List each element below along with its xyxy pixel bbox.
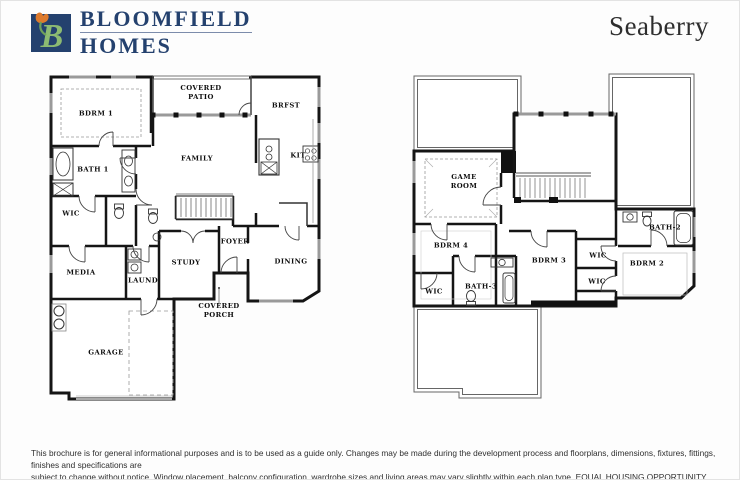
room-label-garage: GARAGE <box>88 349 123 358</box>
room-label-family: FAMILY <box>181 155 213 164</box>
room-label-study: STUDY <box>172 259 201 268</box>
bloomfield-logo-icon: B <box>29 8 73 59</box>
room-label-foyer: FOYER <box>221 238 249 247</box>
room-label-wic-mid: WIC <box>588 278 605 287</box>
room-label-brfst: BRFST <box>272 102 300 111</box>
room-label-bdrm-3: BDRM 3 <box>532 257 566 266</box>
room-label-laund: LAUND <box>128 277 158 286</box>
room-label-game-room: GAME ROOM <box>451 173 478 191</box>
brand-header: B BLOOMFIELD HOMES <box>29 8 252 59</box>
room-label-bdrm-2: BDRM 2 <box>630 260 664 269</box>
second-floor-plan-drawing <box>401 61 701 406</box>
disclaimer-line1: This brochure is for general information… <box>31 447 719 471</box>
disclaimer-line2: subject to change without notice. Window… <box>31 471 719 480</box>
room-label-covered-porch: COVERED PORCH <box>198 302 239 320</box>
brochure-page: B BLOOMFIELD HOMES Seaberry <box>0 0 740 480</box>
room-label-media: MEDIA <box>66 269 95 278</box>
room-label-wic-upper: WIC <box>589 252 606 261</box>
room-label-covered-patio: COVERED PATIO <box>180 84 221 102</box>
room-label-dining: DINING <box>275 258 308 267</box>
room-label-kit: KIT <box>290 152 305 161</box>
brand-wordmark: BLOOMFIELD HOMES <box>80 8 252 57</box>
room-label-bath-3: BATH-3 <box>465 283 497 292</box>
room-label-bath-1: BATH 1 <box>77 166 109 175</box>
disclaimer-text: This brochure is for general information… <box>31 447 719 480</box>
svg-text:B: B <box>40 18 64 54</box>
room-label-bath-2: BATH-2 <box>649 224 681 233</box>
room-label-bdrm-1: BDRM 1 <box>79 110 113 119</box>
brand-name-line1: BLOOMFIELD <box>80 8 252 33</box>
plan-title: Seaberry <box>609 11 709 42</box>
room-label-wic-left: WIC <box>425 288 442 297</box>
brand-name-line2: HOMES <box>80 35 252 57</box>
first-floor-plan: BDRM 1 COVERED PATIO BRFST FAMILY KIT BA… <box>41 63 341 423</box>
room-label-bdrm-4: BDRM 4 <box>434 242 468 251</box>
room-label-wic: WIC <box>62 210 79 219</box>
second-floor-plan: GAME ROOM BDRM 4 BATH-2 BDRM 3 WIC BDRM … <box>401 61 701 406</box>
